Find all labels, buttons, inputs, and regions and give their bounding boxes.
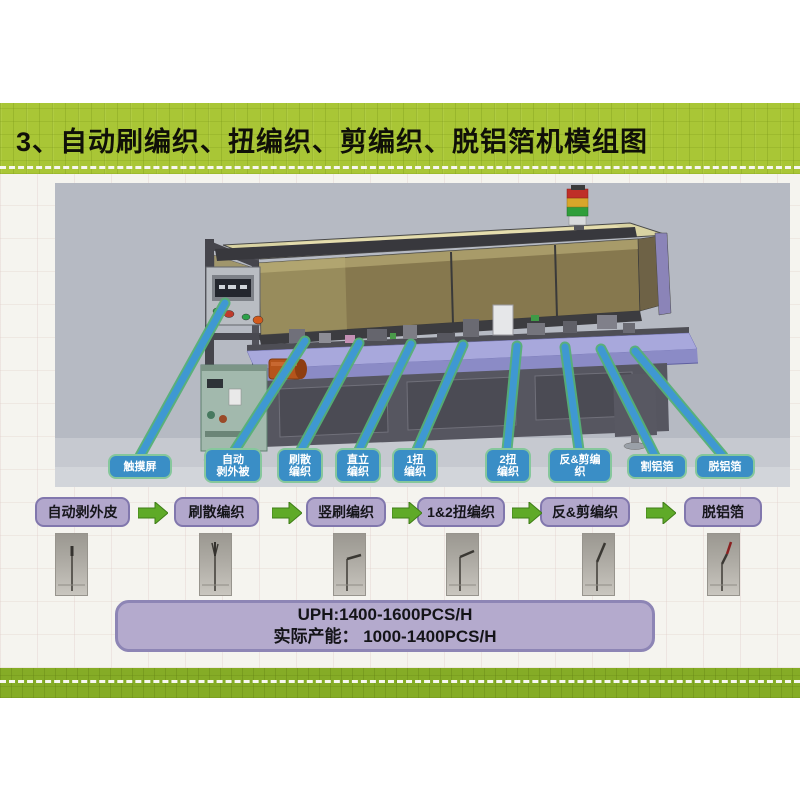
callout-auto-strip-jacket: 自动 剥外被 xyxy=(204,448,262,483)
flow-arrow-icon xyxy=(272,502,302,524)
flow-arrow-icon xyxy=(512,502,542,524)
title-bar: 3、自动刷编织、扭编织、剪编织、脱铝箔机模组图 xyxy=(0,103,800,174)
product-photo-twisted-braid xyxy=(446,533,479,596)
product-photo-upright-braid xyxy=(333,533,366,596)
signal-tower xyxy=(567,185,588,230)
slide: 3、自动刷编织、扭编织、剪编织、脱铝箔机模组图 xyxy=(0,0,800,800)
product-photo-brushed-braid xyxy=(199,533,232,596)
flow-step-vertical-brush: 竖刷编织 xyxy=(306,497,386,527)
callout-brush-braid: 刷散 编织 xyxy=(277,448,323,483)
title-dashed-divider xyxy=(0,166,800,169)
callout-twist1-braid: 1扭 编织 xyxy=(392,448,438,483)
machine-illustration xyxy=(55,183,790,487)
callout-strip-foil: 脱铝箔 xyxy=(695,454,755,479)
callout-upright-braid: 直立 编织 xyxy=(335,448,381,483)
flow-step-brush-braid: 刷散编织 xyxy=(174,497,259,527)
flow-step-twist: 1&2扭编织 xyxy=(417,497,505,527)
callout-twist2-braid: 2扭 编织 xyxy=(485,448,531,483)
machine-figure: 触摸屏 自动 剥外被 刷散 编织 直立 编织 1扭 编织 2扭 编织 反&剪编 … xyxy=(55,183,790,487)
flow-arrow-icon xyxy=(138,502,168,524)
flow-arrow-icon xyxy=(392,502,422,524)
footer-band xyxy=(0,668,800,698)
uph-value: UPH:1400-1600PCS/H xyxy=(298,604,473,626)
callout-cut-foil: 割铝箔 xyxy=(627,454,687,479)
product-photo-cut-braid xyxy=(582,533,615,596)
capacity-box: UPH:1400-1600PCS/H 实际产能： 1000-1400PCS/H xyxy=(115,600,655,652)
product-photo-stripped-wire xyxy=(55,533,88,596)
callout-reverse-cut-braid: 反&剪编 织 xyxy=(548,448,612,483)
product-photo-foil-stripped xyxy=(707,533,740,596)
flow-step-strip-foil: 脱铝箔 xyxy=(684,497,762,527)
page-title: 3、自动刷编织、扭编织、剪编织、脱铝箔机模组图 xyxy=(16,120,648,159)
flow-step-auto-strip: 自动剥外皮 xyxy=(35,497,130,527)
flow-arrow-icon xyxy=(646,502,676,524)
flow-step-reverse-cut: 反&剪编织 xyxy=(540,497,630,527)
footer-dashed-divider xyxy=(0,680,800,683)
callout-touch-screen: 触摸屏 xyxy=(108,454,172,479)
actual-capacity-value: 实际产能： 1000-1400PCS/H xyxy=(274,626,497,648)
